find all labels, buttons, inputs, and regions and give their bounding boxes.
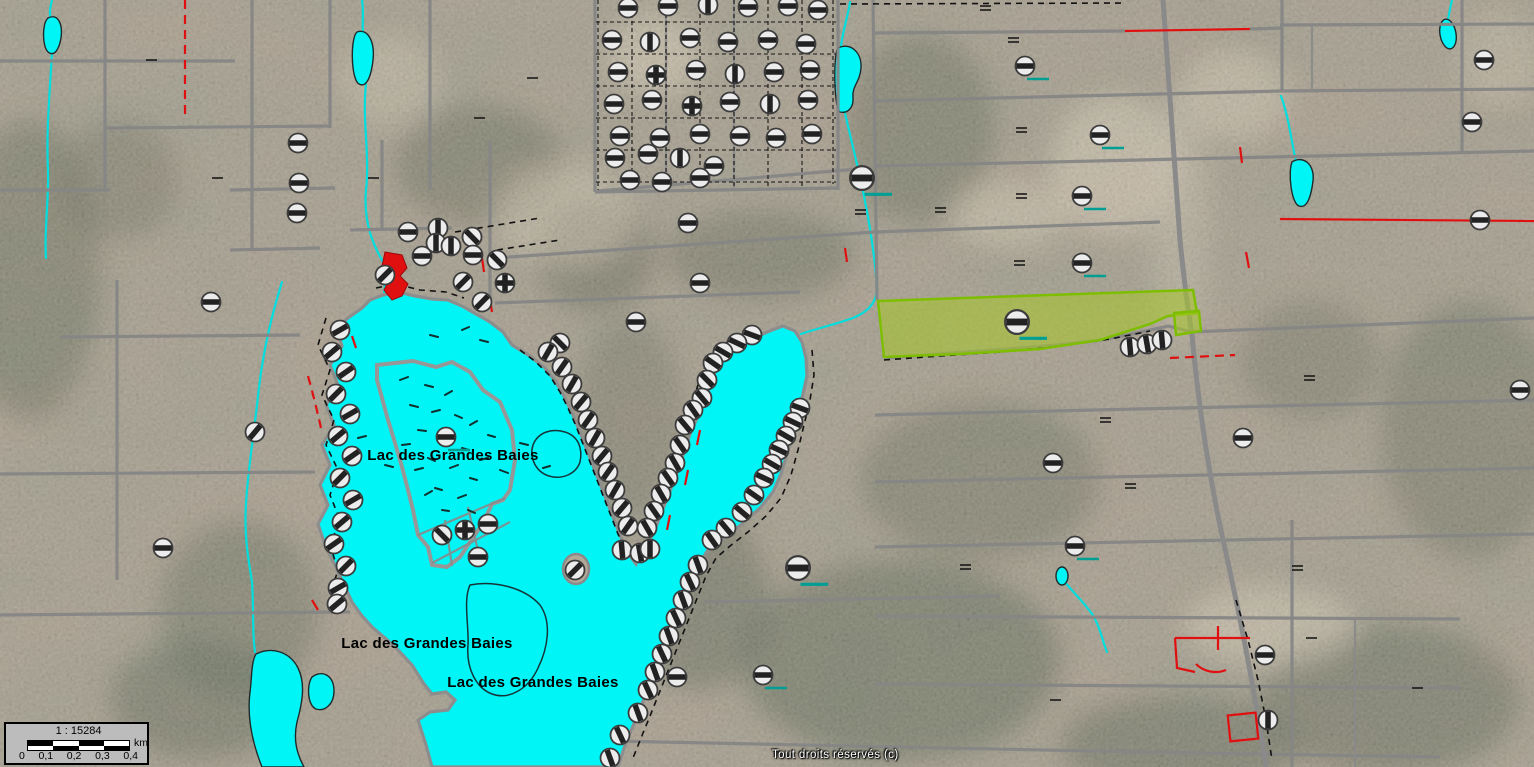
lot-marker[interactable] [653, 173, 672, 192]
lot-marker[interactable] [681, 573, 700, 592]
copyright-text: Tout droits réservés (c) [772, 749, 899, 761]
lot-marker[interactable] [797, 35, 816, 54]
tick-label: 0,2 [67, 750, 82, 762]
lot-marker[interactable] [671, 149, 690, 168]
lot-marker[interactable] [433, 526, 452, 545]
lot-marker[interactable] [653, 645, 672, 664]
lot-marker[interactable] [639, 681, 658, 700]
lot-marker[interactable] [1475, 51, 1494, 70]
tick-label: 0,4 [123, 750, 138, 762]
lot-marker[interactable] [647, 66, 666, 85]
lot-marker[interactable] [572, 393, 591, 412]
lot-marker[interactable] [343, 447, 362, 466]
lot-marker[interactable] [290, 174, 309, 193]
lake-label: Lac des Grandes Baies [341, 635, 512, 652]
lot-marker[interactable] [1121, 338, 1140, 357]
lake-label: Lac des Grandes Baies [447, 674, 618, 691]
lake-label: Lac des Grandes Baies [367, 447, 538, 464]
lot-marker[interactable] [638, 519, 657, 538]
lot-marker[interactable] [454, 273, 473, 292]
pond [352, 31, 373, 85]
lot-marker[interactable] [399, 223, 418, 242]
lot-marker[interactable] [606, 149, 625, 168]
lot-marker[interactable] [698, 371, 717, 390]
lot-marker[interactable] [563, 375, 582, 394]
tick-label: 0,1 [39, 750, 54, 762]
lot-marker[interactable] [779, 0, 798, 16]
lot-marker[interactable] [442, 237, 461, 256]
lot-marker[interactable] [579, 411, 598, 430]
lot-marker[interactable] [496, 274, 515, 293]
lot-marker[interactable] [323, 343, 342, 362]
lot-marker[interactable] [488, 251, 507, 270]
lot-marker[interactable] [691, 274, 710, 293]
lot-marker[interactable] [689, 556, 708, 575]
lot-marker[interactable] [643, 91, 662, 110]
lot-marker[interactable] [703, 531, 722, 550]
lot-marker[interactable] [344, 491, 363, 510]
scalebar-unit: km [134, 737, 148, 749]
lot-marker[interactable] [627, 313, 646, 332]
lot-marker[interactable] [683, 97, 702, 116]
lot-marker[interactable] [687, 61, 706, 80]
lot-marker[interactable] [646, 663, 665, 682]
lot-marker[interactable] [767, 129, 786, 148]
lot-marker[interactable] [599, 463, 618, 482]
lot-marker[interactable] [799, 91, 818, 110]
lot-marker[interactable] [337, 363, 356, 382]
lot-marker[interactable] [651, 129, 670, 148]
lot-marker[interactable] [566, 561, 585, 580]
lot-marker[interactable] [341, 405, 360, 424]
lot-marker[interactable] [333, 513, 352, 532]
lot-marker[interactable] [1463, 113, 1482, 132]
scalebar-ticks: 0 0,1 0,2 0,3 0,4 [19, 750, 138, 762]
pond [309, 674, 334, 710]
lot-marker[interactable] [641, 540, 660, 559]
lot-marker[interactable] [731, 127, 750, 146]
lot-marker[interactable] [739, 0, 758, 17]
lot-marker[interactable] [759, 31, 778, 50]
lot-marker[interactable] [325, 535, 344, 554]
lot-marker[interactable] [328, 595, 347, 614]
lot-marker[interactable] [469, 548, 488, 567]
lot-marker[interactable] [246, 423, 265, 442]
lot-marker[interactable] [1256, 646, 1275, 665]
lot-marker[interactable] [376, 266, 395, 285]
lot-marker[interactable] [603, 31, 622, 50]
lot-marker[interactable] [668, 668, 687, 687]
lot-marker[interactable] [553, 358, 572, 377]
lot-marker[interactable] [803, 125, 822, 144]
lot-marker[interactable] [463, 228, 482, 247]
lot-marker[interactable] [721, 93, 740, 112]
lot-marker[interactable] [809, 1, 828, 20]
lot-marker[interactable] [1471, 211, 1490, 230]
lot-marker[interactable] [331, 321, 350, 340]
lot-marker[interactable] [327, 385, 346, 404]
lot-marker[interactable] [329, 427, 348, 446]
lot-marker[interactable] [605, 95, 624, 114]
lot-marker[interactable] [659, 0, 678, 16]
lot-marker[interactable] [619, 0, 638, 18]
lot-marker[interactable] [154, 539, 173, 558]
lot-marker[interactable] [586, 429, 605, 448]
map-viewport[interactable]: Lac des Grandes Baies Lac des Grandes Ba… [0, 0, 1534, 767]
lot-marker[interactable] [691, 125, 710, 144]
lot-marker[interactable] [606, 481, 625, 500]
lot-marker[interactable] [1511, 381, 1530, 400]
tick-label: 0,3 [95, 750, 110, 762]
lot-marker[interactable] [202, 293, 221, 312]
lot-marker[interactable] [609, 63, 628, 82]
pond [249, 650, 304, 767]
lot-marker[interactable] [337, 557, 356, 576]
lot-marker[interactable] [639, 145, 658, 164]
lot-marker[interactable] [611, 726, 630, 745]
lot-marker[interactable] [801, 61, 820, 80]
lot-marker[interactable] [679, 214, 698, 233]
pond [44, 17, 62, 54]
lot-marker[interactable] [745, 486, 764, 505]
lot-marker[interactable] [1259, 711, 1278, 730]
lot-marker[interactable] [479, 515, 498, 534]
lot-marker[interactable] [611, 127, 630, 146]
aerial-map-canvas[interactable]: Lac des Grandes Baies Lac des Grandes Ba… [0, 0, 1534, 767]
lot-marker[interactable] [629, 704, 648, 723]
pond [1056, 567, 1068, 585]
lot-marker[interactable] [691, 169, 710, 188]
lot-marker[interactable] [667, 609, 686, 628]
lot-marker[interactable] [699, 0, 718, 15]
lot-marker[interactable] [619, 517, 638, 536]
lot-marker[interactable] [726, 65, 745, 84]
lot-marker[interactable] [601, 749, 620, 767]
lot-marker[interactable] [539, 343, 558, 362]
lot-marker[interactable] [681, 29, 700, 48]
lot-marker[interactable] [289, 134, 308, 153]
lot-marker[interactable] [765, 63, 784, 82]
lot-marker[interactable] [464, 246, 483, 265]
lot-marker[interactable] [613, 499, 632, 518]
lot-marker[interactable] [733, 503, 752, 522]
lot-marker[interactable] [660, 627, 679, 646]
lot-marker[interactable] [755, 469, 774, 488]
lot-marker[interactable] [456, 521, 475, 540]
scalebar: 1 : 15284 km 0 0,1 0,2 0,3 0,4 [4, 722, 149, 765]
lot-marker[interactable] [331, 469, 350, 488]
lot-marker[interactable] [676, 416, 695, 435]
lot-marker[interactable] [719, 33, 738, 52]
lot-marker[interactable] [671, 436, 690, 455]
lot-marker[interactable] [674, 591, 693, 610]
lot-marker[interactable] [1153, 331, 1172, 350]
lot-marker[interactable] [761, 95, 780, 114]
lot-marker[interactable] [1044, 454, 1063, 473]
lot-marker[interactable] [621, 171, 640, 190]
lot-marker[interactable] [641, 33, 660, 52]
tick-label: 0 [19, 750, 25, 762]
lot-marker[interactable] [473, 293, 492, 312]
lot-marker[interactable] [1234, 429, 1253, 448]
lot-marker[interactable] [613, 541, 632, 560]
scale-ratio-label: 1 : 15284 [28, 725, 129, 738]
lot-marker[interactable] [288, 204, 307, 223]
